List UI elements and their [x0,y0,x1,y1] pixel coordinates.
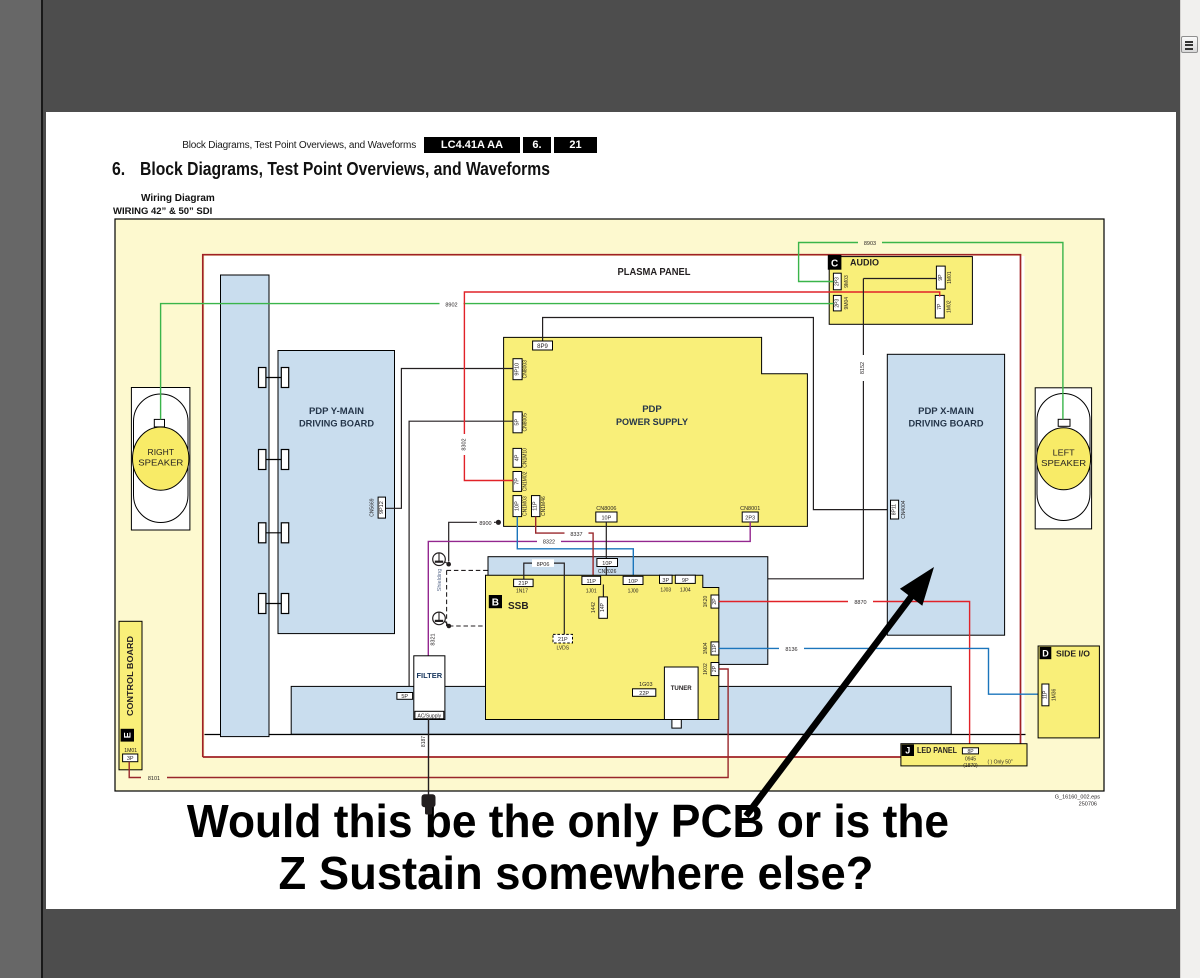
svg-text:C: C [831,258,838,269]
svg-text:CN4004: CN4004 [901,500,907,519]
svg-text:8337: 8337 [570,532,582,538]
svg-text:10P: 10P [628,579,638,585]
svg-text:CN1M46: CN1M46 [541,496,547,516]
svg-text:9P12: 9P12 [379,501,385,514]
svg-text:5P: 5P [401,694,408,700]
svg-text:1J01: 1J01 [586,589,597,595]
svg-text:11P: 11P [587,579,597,585]
svg-text:( ) Only 50”: ( ) Only 50” [987,760,1012,766]
svg-text:PDP X-MAIN: PDP X-MAIN [918,406,974,417]
svg-text:3P: 3P [662,578,669,584]
svg-text:PLASMA PANEL: PLASMA PANEL [618,267,691,278]
svg-text:POWER SUPPLY: POWER SUPPLY [616,417,689,428]
svg-text:1J04: 1J04 [680,588,691,594]
svg-text:2P3: 2P3 [745,516,755,522]
svg-text:9P: 9P [682,578,689,584]
svg-text:1G03: 1G03 [639,682,652,688]
svg-text:9M03: 9M03 [844,275,850,288]
svg-text:FILTER: FILTER [416,671,442,680]
svg-text:1J00: 1J00 [628,589,639,595]
svg-text:8P: 8P [967,749,974,755]
svg-text:1M36: 1M36 [1052,688,1058,701]
svg-text:J: J [905,745,910,755]
svg-text:2P: 2P [712,665,718,672]
svg-text:9P10: 9P10 [515,363,521,376]
svg-text:4P: 4P [514,454,520,461]
svg-text:1M01: 1M01 [947,271,953,284]
svg-text:1M01: 1M01 [124,748,137,754]
svg-text:9P: 9P [938,274,944,281]
svg-text:10P: 10P [602,516,612,522]
svg-text:14P: 14P [600,602,606,612]
svg-text:DRIVING BOARD: DRIVING BOARD [909,419,984,430]
svg-text:CN8001: CN8001 [740,506,760,512]
svg-text:8136: 8136 [785,647,797,653]
svg-text:CN5669: CN5669 [369,498,375,517]
svg-text:AUDIO: AUDIO [850,258,879,269]
svg-text:8903: 8903 [864,241,876,247]
svg-text:AC/Supply: AC/Supply [417,713,441,719]
svg-text:SPEAKER: SPEAKER [138,458,183,468]
svg-text:0945: 0945 [965,757,976,763]
svg-text:7P: 7P [937,303,943,310]
svg-text:SPEAKER: SPEAKER [1041,458,1086,468]
svg-text:PDP Y-MAIN: PDP Y-MAIN [309,406,364,417]
svg-text:TUNER: TUNER [671,685,692,692]
svg-text:CN8006: CN8006 [596,506,616,512]
svg-text:8P9: 8P9 [537,344,548,350]
svg-text:B: B [492,597,499,608]
svg-text:CN8005: CN8005 [523,413,529,432]
svg-text:8900: 8900 [479,521,491,527]
svg-text:10P: 10P [602,561,612,567]
svg-text:(1870): (1870) [963,763,978,769]
svg-text:1N04: 1N04 [703,642,709,654]
svg-text:1K02: 1K02 [703,663,709,675]
svg-text:3P: 3P [127,756,134,762]
svg-text:2P: 2P [712,598,718,605]
svg-text:DRIVING BOARD: DRIVING BOARD [299,419,374,430]
svg-text:CN1M10: CN1M10 [523,448,529,468]
svg-text:2P3: 2P3 [834,277,840,286]
svg-text:CN2026: CN2026 [598,569,617,575]
svg-text:8302: 8302 [461,438,467,450]
svg-text:1442: 1442 [591,602,597,613]
svg-text:8152: 8152 [860,362,866,374]
svg-text:1J03: 1J03 [660,588,671,594]
svg-text:10P: 10P [514,501,520,511]
svg-text:5P: 5P [515,419,521,426]
svg-text:CN1M02: CN1M02 [523,471,529,491]
svg-text:LVDS: LVDS [556,646,569,652]
svg-text:Shielding: Shielding [437,569,443,592]
svg-text:22P: 22P [639,691,649,697]
svg-text:G_16160_002.eps: G_16160_002.eps [1055,795,1101,801]
svg-text:8101: 8101 [148,776,160,782]
svg-text:2P3: 2P3 [834,299,840,308]
svg-text:CN1M03: CN1M03 [523,496,529,516]
svg-text:PDP: PDP [642,404,662,415]
svg-text:8P11: 8P11 [892,504,898,516]
svg-text:8321: 8321 [430,633,436,645]
svg-text:250706: 250706 [1079,802,1097,808]
svg-text:CONTROL BOARD: CONTROL BOARD [126,636,135,716]
svg-text:1M02: 1M02 [947,300,953,313]
svg-text:8187: 8187 [421,736,427,747]
svg-text:LEFT: LEFT [1053,448,1075,458]
svg-text:7P: 7P [514,478,520,485]
svg-text:21P: 21P [558,637,568,643]
svg-text:1N17: 1N17 [516,589,528,595]
svg-text:11P: 11P [712,643,718,652]
svg-text:E: E [122,732,132,738]
svg-text:1K20: 1K20 [703,595,709,607]
svg-text:9M04: 9M04 [844,297,850,310]
svg-text:21P: 21P [518,581,528,587]
svg-text:SSB: SSB [508,601,529,612]
svg-text:D: D [1042,649,1049,659]
svg-text:11P: 11P [533,501,539,511]
svg-text:LED PANEL: LED PANEL [917,746,957,755]
svg-text:8902: 8902 [445,302,457,308]
svg-text:8870: 8870 [854,600,866,606]
svg-text:11P: 11P [1042,690,1048,699]
svg-text:8322: 8322 [543,540,555,546]
svg-text:RIGHT: RIGHT [148,447,175,457]
svg-text:CN8003: CN8003 [523,360,529,379]
svg-text:SIDE I/O: SIDE I/O [1056,650,1090,659]
svg-text:8P06: 8P06 [537,562,550,568]
